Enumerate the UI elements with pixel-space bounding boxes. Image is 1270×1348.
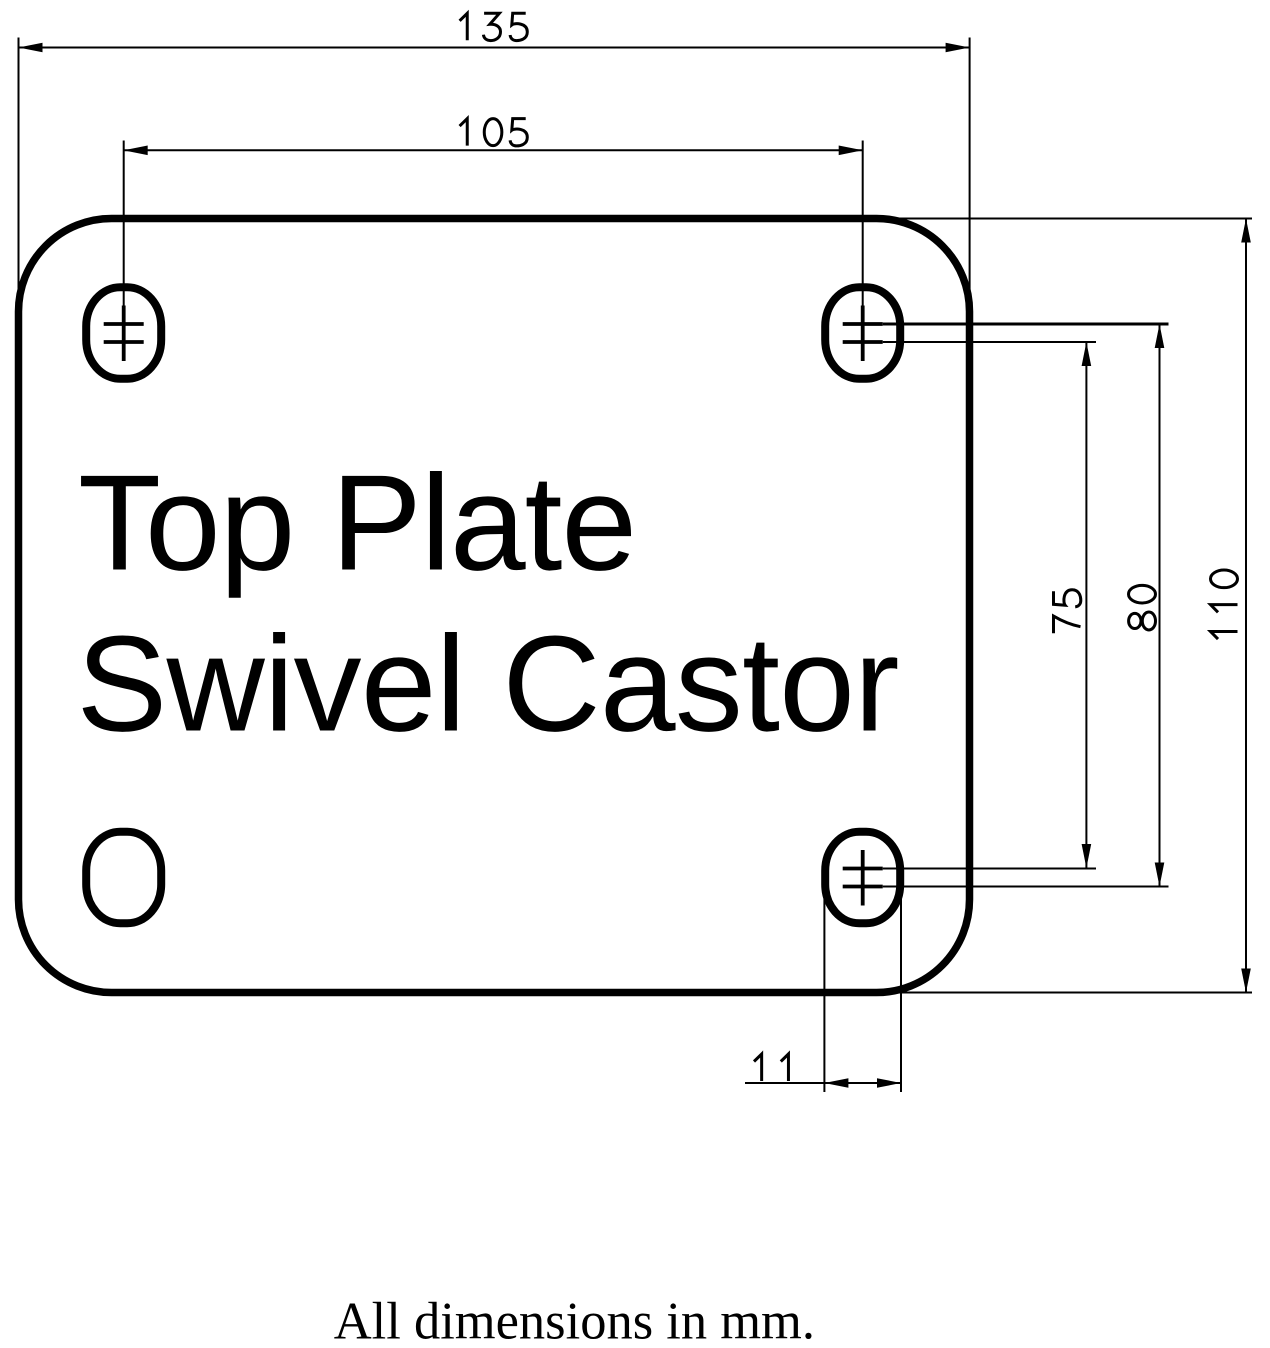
svg-text:Top Plate: Top Plate bbox=[78, 447, 636, 599]
svg-text:All dimensions in mm.: All dimensions in mm. bbox=[334, 1293, 815, 1348]
svg-text:Swivel Castor: Swivel Castor bbox=[77, 608, 899, 760]
